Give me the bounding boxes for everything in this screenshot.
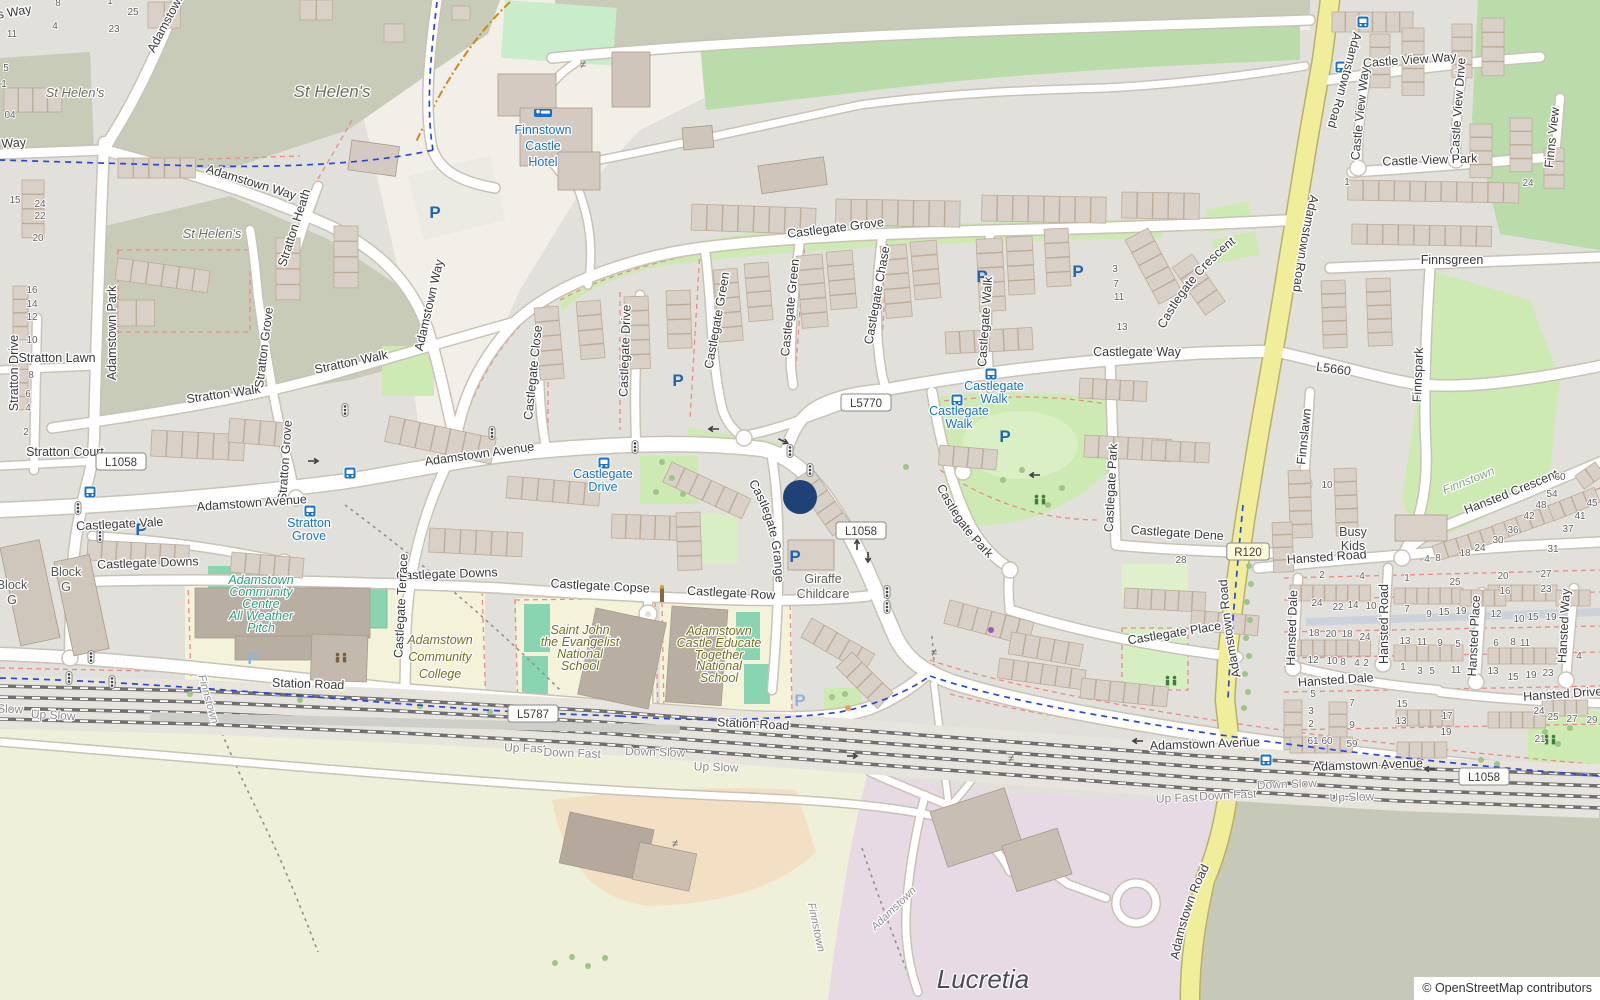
map-viewport[interactable]: PPPPPPPPP≠≠≠≠'s WayWayAdamstown WayAdams…	[0, 0, 1600, 1000]
gate-icon: ≠	[580, 59, 586, 71]
house-number: 3	[1417, 666, 1423, 677]
parking-icon: P	[999, 427, 1010, 446]
house-number: 19	[1440, 727, 1452, 738]
house-number: 5	[1455, 639, 1461, 650]
house-number: 04	[4, 110, 16, 121]
house-number: 19	[1455, 606, 1467, 617]
poi-label: Block	[51, 565, 82, 579]
traffic-signal-icon	[75, 502, 81, 515]
poi-label: Block	[0, 578, 28, 592]
house-number: 4	[1576, 651, 1582, 662]
house-number: 27	[1540, 569, 1552, 580]
school-label: Community	[408, 650, 472, 664]
gate-icon: ≠	[672, 838, 678, 850]
house-number: 31	[1547, 544, 1559, 555]
school-label: Pitch	[247, 621, 275, 635]
traffic-signal-icon	[807, 464, 813, 477]
street-label: Stratton Court	[26, 445, 104, 459]
railway-label: Up Fast	[1156, 790, 1199, 805]
house-number: 20	[32, 233, 44, 244]
house-number: 28	[1175, 555, 1187, 566]
house-number: 7	[1113, 279, 1119, 290]
road-ref-badge: L1058	[96, 453, 146, 470]
house-number: 5	[1429, 666, 1435, 677]
house-number: 24	[1533, 706, 1545, 717]
house-number: 4	[1359, 571, 1365, 582]
house-number: 16	[1499, 586, 1511, 597]
house-number: 24	[1474, 543, 1486, 554]
house-number: 13	[1487, 666, 1499, 677]
house-number: 19	[1545, 612, 1557, 623]
house-number: 8	[28, 370, 34, 381]
house-number: 12	[1490, 609, 1502, 620]
traffic-signal-icon	[342, 404, 348, 417]
traffic-signal-icon	[884, 601, 890, 614]
poi-label: G	[61, 580, 71, 594]
house-number: 11	[1451, 665, 1462, 676]
railway-label: Up Slow	[31, 707, 77, 723]
poi-label: Childcare	[797, 587, 850, 601]
road-ref-text: L5787	[517, 709, 549, 721]
house-number: 13	[1395, 716, 1407, 727]
house-number: 1	[1400, 662, 1406, 673]
house-number: 1	[1344, 177, 1350, 188]
house-number: 9	[1437, 638, 1443, 649]
poi-label: G	[7, 593, 17, 607]
traffic-signal-icon	[109, 676, 115, 689]
house-number: 14	[26, 299, 38, 310]
school-label: Adamstown	[406, 633, 472, 647]
street-label: Hansted Road	[1377, 584, 1391, 664]
house-number: 8	[1435, 553, 1441, 564]
house-number: 23	[1540, 584, 1552, 595]
house-number: 6	[25, 389, 31, 400]
street-label: Station Road	[272, 676, 345, 693]
house-number: 14	[1347, 600, 1359, 611]
house-number: 15	[1527, 612, 1539, 623]
poi-dot-icon	[988, 627, 994, 633]
house-number: 36	[1507, 525, 1519, 536]
street-label: Stratton Lawn	[18, 351, 95, 365]
house-number: 11	[1417, 637, 1428, 648]
house-number: 16	[26, 285, 38, 296]
place-label: St Helen's	[46, 85, 105, 100]
house-number: 24	[1522, 178, 1534, 189]
transit-stop-label: Stratton	[287, 516, 331, 530]
house-number: 11	[1520, 638, 1531, 649]
house-number: 17	[1441, 711, 1453, 722]
house-number: 25	[127, 7, 139, 18]
house-number: 10	[1326, 656, 1338, 667]
place-label: St Helen's	[294, 82, 371, 101]
house-number: 20	[1497, 571, 1509, 582]
house-number: 12	[1307, 655, 1319, 666]
bollard-icon	[660, 588, 664, 602]
parking-icon: P	[794, 691, 805, 710]
house-number: 60	[1554, 472, 1566, 483]
house-number: 8	[55, 0, 61, 9]
hotel-bed-icon	[534, 109, 552, 117]
poi-label: Castle	[525, 139, 560, 153]
house-number: 15	[9, 195, 21, 206]
bus-stop-icon[interactable]	[344, 467, 356, 479]
railway-label: Up Slow	[1329, 789, 1374, 805]
house-number: 23	[108, 24, 120, 35]
house-number: 24	[1359, 632, 1371, 643]
house-number: 13	[1399, 636, 1411, 647]
house-number: 48	[1535, 500, 1547, 511]
road-ref-text: R120	[1234, 547, 1262, 559]
house-number: 22	[34, 211, 46, 222]
house-number: 23	[1542, 668, 1554, 679]
house-number: 29	[1586, 715, 1598, 726]
house-number: 6	[1493, 638, 1499, 649]
house-number: 27	[1566, 714, 1578, 725]
poi-label: Hotel	[528, 155, 557, 169]
house-number: 10	[1513, 614, 1525, 625]
house-number: 1	[1, 79, 7, 90]
house-number: 30	[1492, 535, 1504, 546]
school-label: College	[419, 667, 461, 681]
house-number: 24	[34, 199, 46, 210]
road-ref-text: L1058	[1468, 772, 1500, 784]
house-number: 12	[26, 312, 38, 323]
road-ref-badge: L1058	[1459, 768, 1509, 785]
street-label: Adamstown Park	[105, 285, 119, 380]
parking-icon: P	[1072, 262, 1083, 281]
house-number: 20	[1325, 629, 1337, 640]
road-ref-text: L1058	[845, 526, 877, 538]
parking-icon: P	[247, 649, 258, 668]
road-ref-badge: L5787	[508, 705, 558, 722]
transit-stop-label: Walk	[945, 417, 973, 431]
house-number: 9	[1426, 609, 1432, 620]
house-number: 1	[1404, 573, 1410, 584]
poi-label: Busy	[1339, 525, 1368, 539]
house-number: 25	[1449, 577, 1461, 588]
place-label: St Helen's	[183, 226, 242, 241]
location-marker[interactable]	[783, 480, 817, 514]
house-number: 13	[1116, 322, 1128, 333]
map-attribution[interactable]: © OpenStreetMap contributors	[1414, 977, 1600, 1000]
poi-dot-icon	[845, 705, 851, 711]
bus-stop-icon[interactable]	[1260, 754, 1272, 766]
house-number: 2	[1363, 658, 1369, 669]
house-number: 2	[23, 427, 29, 438]
road-ref-badge: R120	[1227, 543, 1269, 560]
house-number: 3	[1112, 264, 1118, 275]
house-number: 45	[1586, 498, 1598, 509]
house-number: 4	[52, 21, 58, 32]
map-canvas[interactable]: PPPPPPPPP≠≠≠≠'s WayWayAdamstown WayAdams…	[0, 0, 1600, 1000]
railway-label: Down Fast	[543, 745, 601, 761]
road-ref-badge: L1058	[836, 522, 886, 539]
house-number: 60	[1321, 736, 1333, 747]
railway-label: Up Fast	[504, 740, 547, 755]
railway-label: Down Slow	[625, 744, 686, 760]
house-number: 15	[1507, 672, 1519, 683]
school-label: School	[561, 659, 600, 673]
house-number: 21	[1534, 734, 1546, 745]
traffic-signal-icon	[787, 445, 793, 458]
traffic-signal-icon	[884, 586, 890, 599]
house-number: 2	[1308, 719, 1314, 730]
transit-stop-label: Grove	[292, 529, 326, 543]
house-number: 41	[1574, 511, 1586, 522]
house-number: 25	[1547, 712, 1559, 723]
house-number: 3	[1308, 706, 1314, 717]
parking-icon: P	[672, 371, 683, 390]
house-number: 8	[1340, 657, 1346, 668]
traffic-signal-icon	[88, 651, 94, 664]
street-label: Finnsgreen	[1421, 253, 1484, 267]
railway-label: Up Slow	[694, 759, 739, 775]
gate-icon: ≠	[931, 647, 937, 659]
house-number: 19	[1525, 670, 1537, 681]
house-number: 22	[1332, 602, 1344, 613]
street-label: Finnspark	[1410, 346, 1426, 402]
street-label: Stratton Drive	[7, 335, 21, 411]
house-number: 9	[1349, 720, 1355, 731]
house-number: 11	[7, 29, 18, 40]
house-number: 5	[1310, 689, 1316, 700]
traffic-signal-icon	[632, 441, 638, 454]
transit-stop-label: Drive	[588, 480, 617, 494]
house-number: 5	[3, 63, 9, 74]
transit-stop-label: Castlegate	[929, 404, 989, 418]
house-number: 18	[1459, 548, 1471, 559]
house-number: 54	[1546, 489, 1558, 500]
house-number: 10	[1321, 480, 1333, 491]
transit-stop-label: Castlegate	[964, 379, 1024, 393]
bus-stop-icon[interactable]	[84, 486, 96, 498]
house-number: 8	[1510, 637, 1516, 648]
parking-icon: P	[429, 203, 440, 222]
house-number: 4	[1424, 554, 1430, 565]
traffic-signal-icon	[489, 427, 495, 440]
house-number: 15	[1396, 699, 1408, 710]
bus-stop-icon[interactable]	[1357, 16, 1369, 28]
house-number: 2	[1319, 570, 1325, 581]
road-ref-text: L5770	[850, 398, 882, 410]
railway-label: Slow	[0, 702, 24, 717]
place-label: Lucretia	[937, 964, 1030, 994]
house-number: 7	[1404, 604, 1410, 615]
parking-icon: P	[789, 547, 800, 566]
house-number: 37	[1562, 524, 1574, 535]
house-number: 18	[1308, 628, 1320, 639]
house-number: 18	[1341, 629, 1353, 640]
house-number: 10	[1365, 601, 1377, 612]
house-number: 10	[26, 335, 38, 346]
poi-label: Kids	[1341, 539, 1365, 553]
poi-label: Finnstown	[515, 123, 572, 137]
road-ref-badge: L5770	[841, 394, 891, 411]
transit-stop-label: Castlegate	[573, 467, 633, 481]
house-number: 15	[1438, 607, 1450, 618]
gate-icon: ≠	[1008, 753, 1014, 765]
house-number: 61	[1307, 736, 1319, 747]
traffic-signal-icon	[66, 672, 72, 685]
house-number: 59	[1346, 739, 1358, 750]
street-label: Way	[1, 135, 27, 151]
house-number: 4	[1354, 658, 1360, 669]
school-label: School	[700, 671, 739, 685]
house-number: 4	[25, 403, 31, 414]
street-label: Castlegate Way	[1093, 345, 1182, 359]
house-number: 42	[1523, 511, 1535, 522]
house-number: 11	[1114, 292, 1125, 303]
street-label: Hansted Dale	[1284, 590, 1301, 666]
road-ref-text: L1058	[105, 457, 137, 469]
house-number: 7	[1349, 698, 1355, 709]
marker-layer	[783, 480, 817, 514]
poi-label: Giraffe	[804, 572, 841, 586]
house-number: 1	[107, 0, 113, 7]
railway-label: Down Slow	[1257, 776, 1318, 792]
house-number: 24	[1311, 598, 1323, 609]
